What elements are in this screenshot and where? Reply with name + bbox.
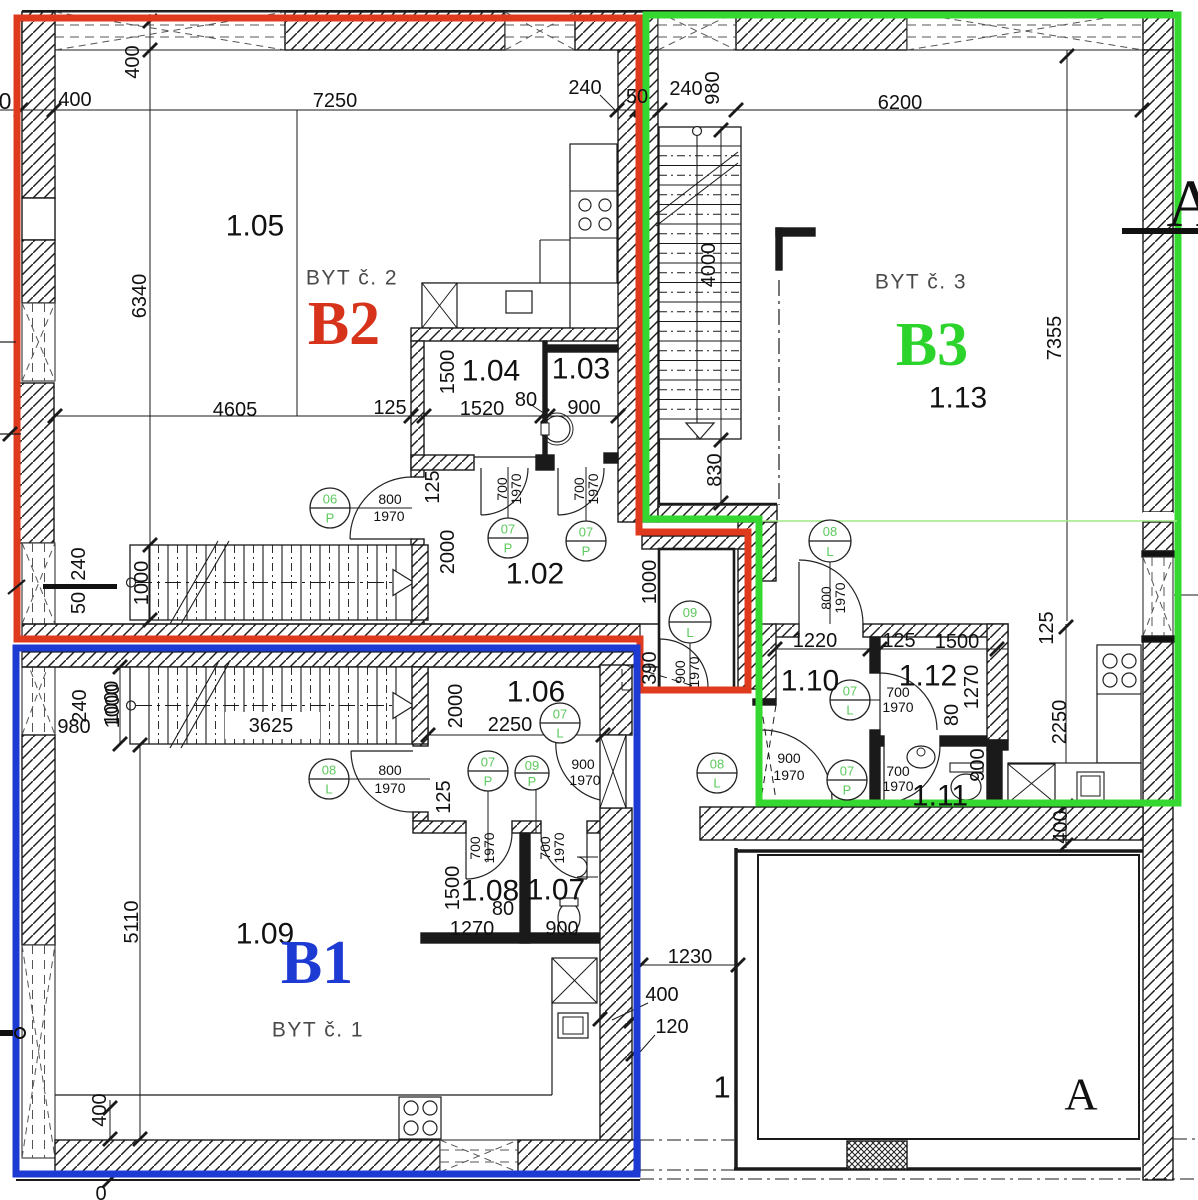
- svg-text:125: 125: [433, 780, 455, 813]
- svg-text:400: 400: [645, 984, 678, 1006]
- svg-text:80: 80: [515, 389, 537, 411]
- svg-text:P: P: [504, 541, 513, 556]
- svg-text:2250: 2250: [1049, 700, 1071, 745]
- svg-text:120: 120: [655, 1016, 688, 1038]
- svg-text:1970: 1970: [773, 767, 804, 783]
- svg-text:A: A: [1166, 165, 1198, 241]
- svg-text:80: 80: [941, 704, 963, 726]
- svg-text:830: 830: [704, 453, 726, 486]
- svg-text:900: 900: [967, 748, 989, 781]
- svg-text:1970: 1970: [686, 656, 702, 687]
- svg-text:800: 800: [378, 491, 402, 507]
- svg-text:2000: 2000: [445, 684, 467, 729]
- svg-text:6340: 6340: [129, 274, 151, 319]
- svg-text:07: 07: [579, 525, 593, 540]
- svg-text:1.12: 1.12: [899, 660, 957, 693]
- svg-text:1500: 1500: [935, 631, 980, 653]
- svg-text:06: 06: [323, 492, 337, 507]
- svg-text:07: 07: [840, 764, 854, 779]
- svg-text:P: P: [843, 783, 852, 798]
- svg-text:1970: 1970: [882, 778, 913, 794]
- svg-text:07: 07: [481, 755, 495, 770]
- svg-text:900: 900: [777, 750, 801, 766]
- svg-text:L: L: [713, 776, 720, 791]
- svg-text:09: 09: [683, 605, 697, 620]
- svg-text:1970: 1970: [882, 699, 913, 715]
- svg-text:1.03: 1.03: [552, 353, 610, 386]
- svg-text:400: 400: [122, 45, 144, 78]
- svg-text:BYT č. 2: BYT č. 2: [306, 267, 398, 290]
- svg-text:P: P: [582, 544, 591, 559]
- svg-text:1.05: 1.05: [226, 210, 284, 243]
- svg-text:1970: 1970: [481, 832, 497, 863]
- svg-text:B2: B2: [308, 290, 380, 358]
- svg-text:1220: 1220: [793, 630, 838, 652]
- svg-text:08: 08: [710, 757, 724, 772]
- svg-text:1.13: 1.13: [929, 382, 987, 415]
- svg-text:1500: 1500: [437, 350, 459, 395]
- svg-text:07: 07: [501, 522, 515, 537]
- svg-text:240: 240: [669, 78, 702, 100]
- svg-text:900: 900: [567, 397, 600, 419]
- svg-text:1000: 1000: [131, 561, 153, 606]
- svg-text:A: A: [1064, 1069, 1097, 1120]
- svg-text:980: 980: [702, 71, 724, 104]
- svg-text:1270: 1270: [450, 918, 495, 940]
- svg-text:240: 240: [69, 689, 91, 722]
- svg-text:0: 0: [95, 1183, 106, 1200]
- svg-text:09: 09: [525, 758, 539, 773]
- svg-text:1970: 1970: [551, 832, 567, 863]
- svg-text:BYT č. 1: BYT č. 1: [272, 1019, 364, 1042]
- svg-text:1970: 1970: [508, 473, 524, 504]
- svg-text:6200: 6200: [878, 92, 923, 114]
- svg-text:125: 125: [1036, 611, 1058, 644]
- svg-text:125: 125: [373, 397, 406, 419]
- svg-text:7250: 7250: [313, 90, 358, 112]
- svg-text:50: 50: [626, 86, 648, 108]
- svg-text:1.06: 1.06: [507, 676, 565, 709]
- svg-text:07: 07: [843, 684, 857, 699]
- svg-text:3625: 3625: [249, 715, 294, 737]
- svg-text:1000: 1000: [102, 684, 124, 729]
- svg-text:1970: 1970: [374, 780, 405, 796]
- svg-text:7355: 7355: [1044, 316, 1066, 361]
- svg-text:4000: 4000: [698, 243, 720, 288]
- svg-text:1000: 1000: [639, 560, 661, 605]
- svg-text:1270: 1270: [961, 665, 983, 710]
- svg-text:BYT č. 3: BYT č. 3: [875, 271, 967, 294]
- svg-text:L: L: [846, 703, 853, 718]
- svg-text:900: 900: [545, 918, 578, 940]
- svg-text:1520: 1520: [460, 398, 505, 420]
- svg-text:240: 240: [68, 547, 90, 580]
- svg-text:1.02: 1.02: [506, 558, 564, 591]
- svg-text:5110: 5110: [121, 900, 143, 943]
- svg-text:1.07: 1.07: [527, 874, 585, 907]
- svg-text:P: P: [484, 774, 493, 789]
- svg-text:125: 125: [882, 630, 915, 652]
- svg-text:400: 400: [58, 89, 91, 111]
- svg-text:1970: 1970: [832, 582, 848, 613]
- svg-text:L: L: [325, 782, 332, 797]
- svg-text:700: 700: [886, 763, 910, 779]
- svg-text:P: P: [326, 511, 335, 526]
- svg-text:08: 08: [823, 524, 837, 539]
- svg-text:900: 900: [571, 756, 595, 772]
- svg-text:2000: 2000: [437, 530, 459, 575]
- svg-text:L: L: [826, 544, 833, 559]
- svg-text:50: 50: [68, 592, 90, 614]
- svg-text:L: L: [686, 625, 693, 640]
- svg-text:07: 07: [553, 707, 567, 722]
- svg-text:L: L: [556, 726, 563, 741]
- svg-text:P: P: [528, 774, 537, 789]
- svg-text:0: 0: [0, 88, 11, 114]
- svg-text:2250: 2250: [488, 714, 533, 736]
- svg-text:1970: 1970: [569, 772, 600, 788]
- svg-text:1.11: 1.11: [912, 780, 968, 813]
- svg-text:400: 400: [89, 1093, 111, 1126]
- svg-text:400: 400: [1050, 810, 1072, 843]
- svg-text:800: 800: [378, 762, 402, 778]
- svg-text:1: 1: [713, 1070, 730, 1105]
- svg-text:1970: 1970: [585, 473, 601, 504]
- svg-text:4605: 4605: [213, 399, 258, 421]
- svg-text:390: 390: [639, 651, 661, 684]
- svg-text:240: 240: [568, 77, 601, 99]
- svg-text:125: 125: [422, 470, 444, 503]
- svg-text:08: 08: [322, 763, 336, 778]
- svg-text:B3: B3: [896, 311, 968, 379]
- svg-text:1970: 1970: [373, 508, 404, 524]
- svg-text:1.10: 1.10: [781, 665, 839, 698]
- svg-text:1.08: 1.08: [461, 875, 519, 908]
- svg-text:1230: 1230: [668, 946, 713, 968]
- svg-text:B1: B1: [281, 929, 353, 997]
- svg-text:1.04: 1.04: [462, 355, 520, 388]
